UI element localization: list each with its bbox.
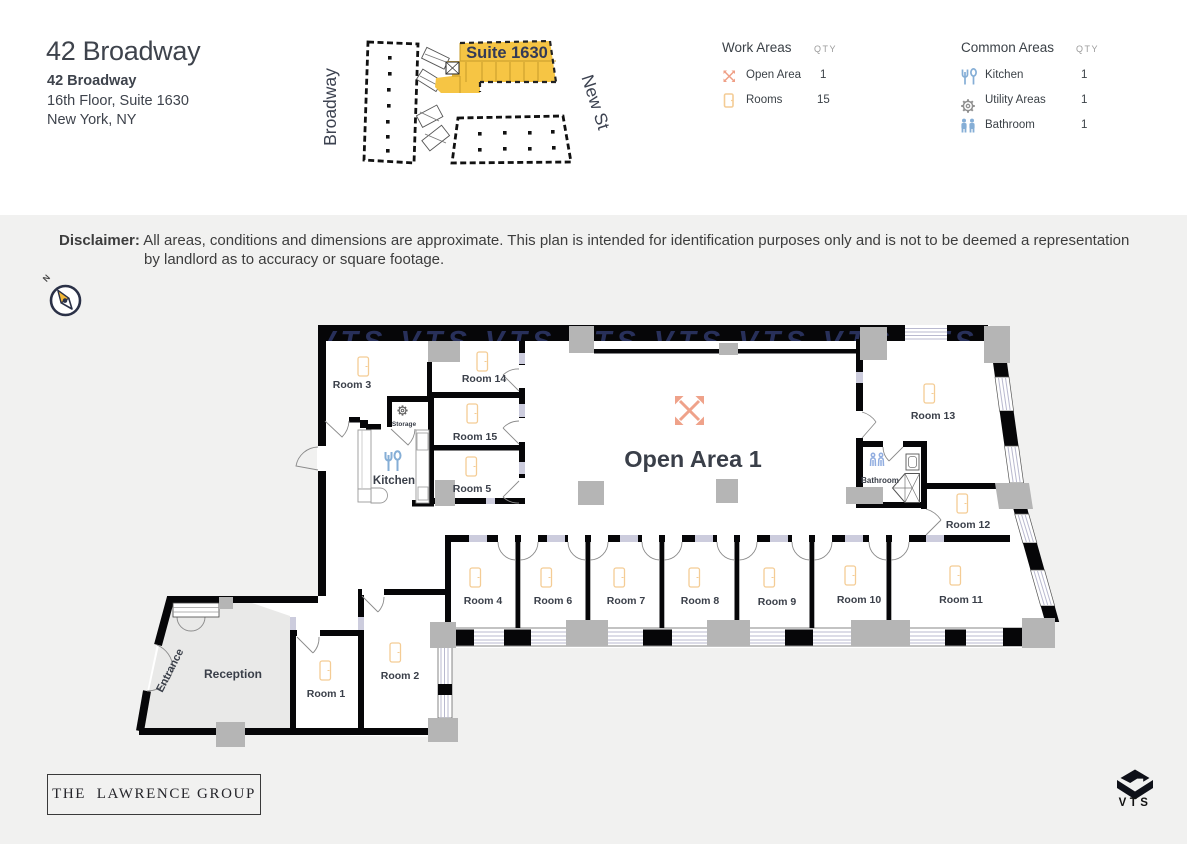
svg-text:Room 3: Room 3 [333,379,372,391]
svg-text:Room 5: Room 5 [453,483,492,495]
svg-text:Reception: Reception [204,667,262,681]
svg-text:Room 10: Room 10 [837,594,882,606]
svg-text:Room 4: Room 4 [464,595,503,607]
svg-text:Room 13: Room 13 [911,410,956,422]
svg-text:Room 11: Room 11 [939,594,983,606]
svg-text:Room 8: Room 8 [681,595,720,607]
svg-text:Kitchen: Kitchen [373,475,415,487]
svg-text:Open Area 1: Open Area 1 [624,446,762,472]
svg-text:Room 1: Room 1 [307,688,346,700]
svg-text:Room 2: Room 2 [381,670,420,682]
svg-text:Room 14: Room 14 [462,373,507,385]
svg-text:Room 12: Room 12 [946,519,991,531]
svg-text:Room 15: Room 15 [453,431,498,443]
svg-text:Room 9: Room 9 [758,596,797,608]
svg-text:Storage: Storage [392,421,417,428]
svg-text:Room 6: Room 6 [534,595,573,607]
svg-text:Bathroom: Bathroom [861,476,899,485]
svg-text:Room 7: Room 7 [607,595,646,607]
